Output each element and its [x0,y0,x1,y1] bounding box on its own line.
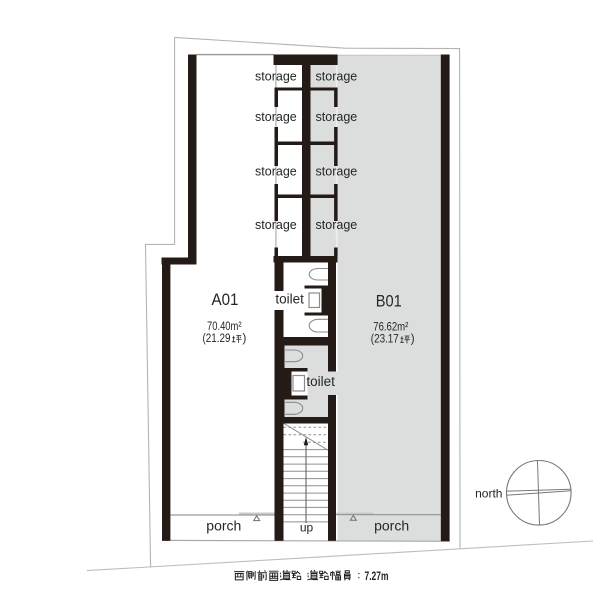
svg-text:storage: storage [316,69,358,83]
svg-text:70.40m²: 70.40m² [207,319,242,333]
svg-text:storage: storage [316,110,358,124]
svg-text:): ) [411,333,415,345]
svg-text:storage: storage [255,69,297,83]
svg-text:toilet: toilet [275,291,304,306]
svg-text:storage: storage [316,165,358,179]
svg-text:storage: storage [255,165,297,179]
svg-text:north: north [475,486,502,500]
svg-text:7.27m: 7.27m [365,569,389,583]
svg-text:storage: storage [255,218,297,232]
svg-text:storage: storage [316,218,358,232]
svg-text:storage: storage [255,110,297,124]
svg-text:up: up [300,520,314,534]
svg-text:porch: porch [206,518,241,534]
svg-text:B01: B01 [376,291,402,310]
svg-text:(23.17: (23.17 [371,333,399,345]
svg-text:porch: porch [374,518,409,534]
svg-text:): ) [243,333,247,345]
svg-text:76.62m²: 76.62m² [373,320,408,334]
svg-text:(21.29: (21.29 [203,333,231,345]
svg-text:toilet: toilet [306,374,335,389]
svg-text:A01: A01 [212,290,239,309]
